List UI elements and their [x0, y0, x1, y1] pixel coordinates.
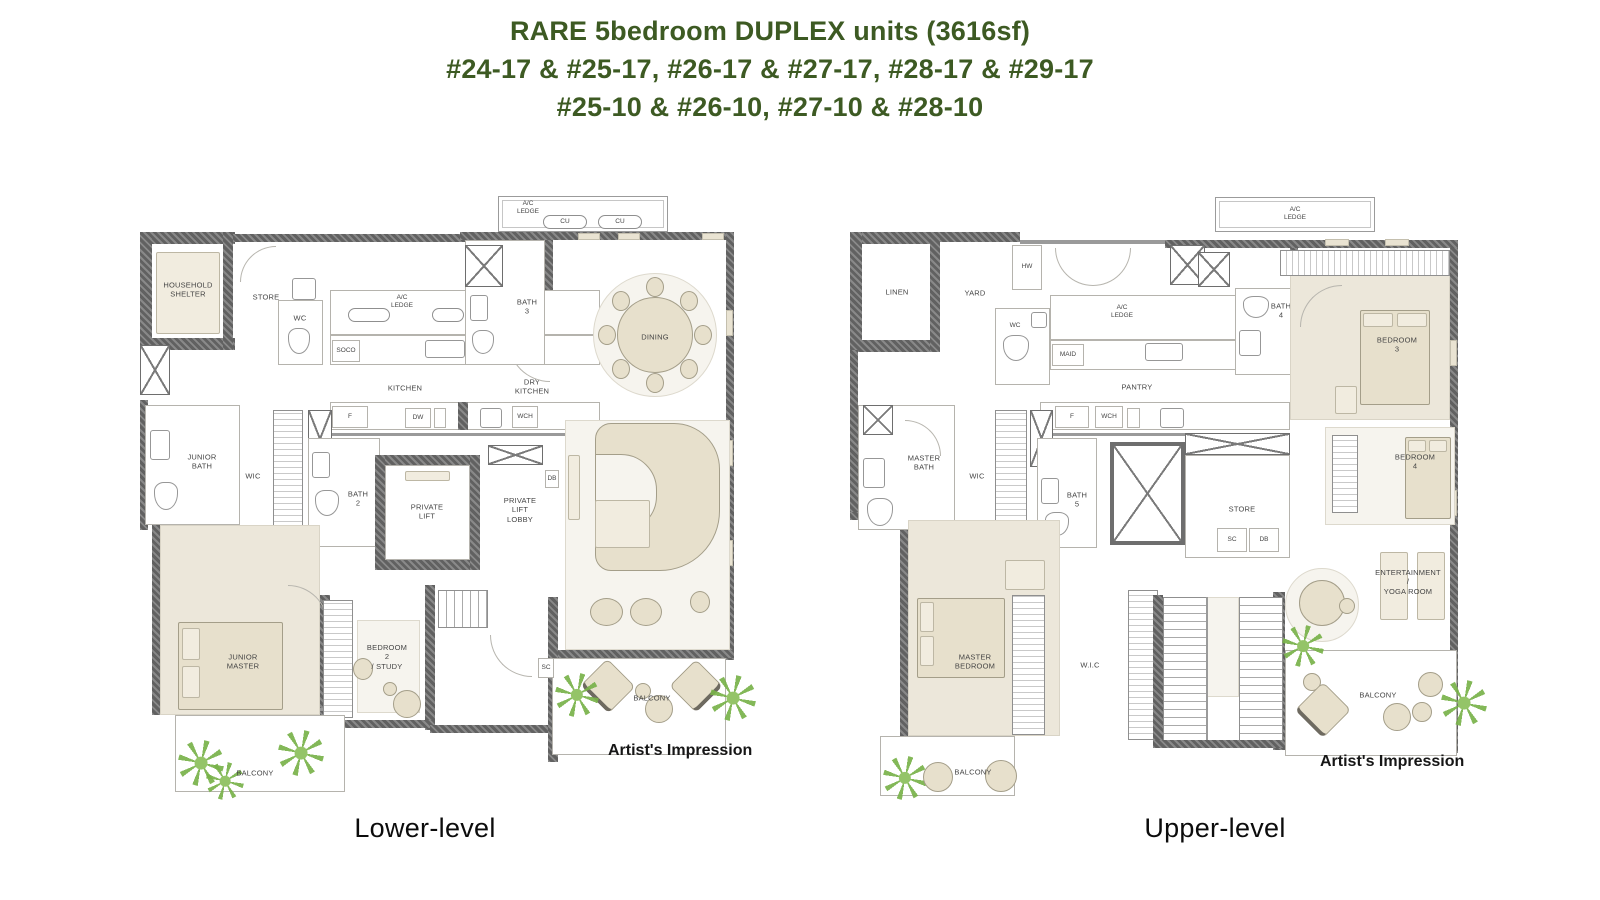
room-label-private-lift-lobby: PRIVATE LIFT LOBBY: [504, 496, 536, 524]
room-label-bedroom3: BEDROOM 3: [1377, 336, 1417, 355]
room-label-bedroom2-study: BEDROOM 2 / STUDY: [367, 643, 407, 671]
round-chair: [923, 762, 953, 792]
sink: [150, 430, 170, 460]
void-shaft: [1110, 442, 1185, 545]
room-label-db: DB: [1259, 536, 1268, 544]
pillow: [1408, 440, 1426, 452]
wall: [940, 232, 1020, 242]
wall: [1165, 240, 1458, 248]
room-label-ac-ledge-top: A/C LEDGE: [517, 200, 539, 216]
lower-level-plan: CU CU A/C LEDGE HOUSEHOLD SHELTER: [140, 190, 800, 810]
stairs: [1163, 597, 1207, 743]
service-shaft: [488, 445, 543, 465]
room-label-linen: LINEN: [885, 287, 908, 296]
dining-chair: [680, 359, 698, 379]
wardrobe: [273, 410, 303, 540]
room-label-sc: SC: [541, 664, 550, 672]
wall: [425, 585, 435, 730]
wardrobe: [323, 600, 353, 718]
sink: [1031, 312, 1047, 328]
palm-plant: [710, 675, 756, 721]
room-label-balcony-right: BALCONY: [1359, 690, 1396, 699]
room-label-pantry: PANTRY: [1122, 382, 1153, 391]
sink: [312, 452, 330, 478]
room-label-master-bedroom: MASTER BEDROOM: [955, 653, 995, 672]
artists-impression-credit: Artist's Impression: [1320, 753, 1464, 771]
upper-level-plan: A/C LEDGE LINEN YARD HW WC: [845, 190, 1470, 810]
floorplan-page: RARE 5bedroom DUPLEX units (3616sf) #24-…: [0, 0, 1600, 900]
service-shaft: [140, 345, 170, 395]
ac-condenser-unit: [432, 308, 464, 322]
room-label-bath4: BATH 4: [1271, 302, 1291, 321]
wall: [458, 402, 468, 430]
nightstand: [1335, 386, 1357, 414]
door-arc: [490, 635, 532, 677]
stairs: [438, 590, 488, 628]
sink: [470, 295, 488, 321]
door-arc: [1055, 248, 1093, 286]
room-label-bath5: BATH 5: [1067, 491, 1087, 510]
dining-chair: [694, 325, 712, 345]
stair-landing: [1207, 597, 1239, 697]
stairs: [1239, 597, 1283, 743]
window-sill: [618, 233, 640, 240]
window-sill: [1325, 239, 1349, 246]
room-label-balcony-right: BALCONY: [633, 693, 670, 702]
appliance: [1127, 408, 1140, 428]
wall: [552, 650, 734, 658]
pouf: [590, 598, 623, 626]
artists-impression-credit: Artist's Impression: [608, 742, 752, 760]
pouf: [690, 591, 710, 613]
round-table: [1418, 672, 1443, 697]
round-table: [383, 682, 397, 696]
pillow: [1429, 440, 1447, 452]
room-label-ac-ledge-left: A/C LEDGE: [1111, 304, 1133, 320]
sink: [292, 278, 316, 300]
coffee-table: [595, 500, 650, 548]
palm-plant: [883, 756, 927, 800]
sink: [1041, 478, 1059, 504]
service-shaft: [1185, 433, 1290, 455]
wall: [430, 725, 548, 733]
room-label-wic2: W.I.C: [1080, 660, 1099, 669]
room-label-soco: SOCO: [336, 347, 355, 355]
room-label-wic: WIC: [969, 471, 984, 480]
room-label-f: F: [1070, 413, 1074, 421]
wall: [375, 455, 480, 465]
room-label-dw: DW: [413, 414, 424, 422]
room-label-junior-bath: JUNIOR BATH: [187, 453, 216, 472]
wall: [1153, 740, 1285, 748]
title-line-1: RARE 5bedroom DUPLEX units (3616sf): [370, 13, 1170, 51]
wall: [850, 232, 862, 352]
round-table: [1412, 702, 1432, 722]
stair-railing: [1206, 597, 1208, 743]
wall: [850, 350, 858, 518]
lower-level-caption: Lower-level: [285, 813, 565, 844]
room-label-ac-ledge: A/C LEDGE: [391, 294, 413, 310]
pillow: [182, 666, 200, 698]
window-sill: [578, 233, 600, 240]
wall: [375, 455, 385, 570]
room-label-household-shelter: HOUSEHOLD SHELTER: [163, 281, 212, 300]
wall: [375, 560, 480, 570]
pouf: [630, 598, 662, 626]
wall: [223, 232, 233, 350]
page-title: RARE 5bedroom DUPLEX units (3616sf) #24-…: [370, 13, 1170, 126]
wall: [140, 232, 152, 350]
upper-level-caption: Upper-level: [1075, 813, 1355, 844]
sink: [863, 458, 885, 488]
room-label-wic: WIC: [245, 471, 260, 480]
wall: [330, 720, 435, 728]
room-label-kitchen: KITCHEN: [388, 383, 422, 392]
room-label-bedroom4: BEDROOM 4: [1395, 453, 1435, 472]
pillow: [920, 636, 934, 666]
room-label-f: F: [348, 413, 352, 421]
room-label-hw: HW: [1022, 263, 1033, 271]
sink: [1160, 408, 1184, 428]
sofa: [595, 423, 720, 571]
title-line-2: #24-17 & #25-17, #26-17 & #27-17, #28-17…: [370, 51, 1170, 89]
wall: [330, 433, 600, 436]
hanging-chair: [1299, 580, 1345, 626]
service-shaft: [863, 405, 893, 435]
room-label-cu: CU: [560, 218, 569, 226]
round-table: [1339, 598, 1355, 614]
cabinet: [1005, 560, 1045, 590]
dining-chair: [598, 325, 616, 345]
palm-plant: [1282, 625, 1324, 667]
room-label-wc: WC: [1010, 322, 1021, 330]
sink: [425, 340, 465, 358]
service-shaft: [1198, 252, 1230, 287]
pillow: [182, 628, 200, 660]
pillow: [920, 602, 934, 632]
sink: [1239, 330, 1261, 356]
window-sill: [702, 233, 724, 240]
wall: [850, 232, 940, 244]
room-label-maid: MAID: [1060, 351, 1076, 359]
room-label-bath2: BATH 2: [348, 490, 368, 509]
armchair: [393, 690, 421, 718]
window-sill: [1385, 239, 1409, 246]
wall: [1020, 240, 1170, 244]
appliance: [434, 408, 446, 428]
room-label-master-bath: MASTER BATH: [908, 454, 940, 473]
room-label-junior-master: JUNIOR MASTER: [227, 653, 259, 672]
room-label-store: STORE: [1229, 504, 1256, 513]
service-shaft: [465, 245, 503, 287]
wall: [930, 232, 940, 352]
room-label-wch: WCH: [517, 413, 533, 421]
room-label-store: STORE: [253, 292, 280, 301]
sink: [480, 408, 502, 428]
sink: [1145, 343, 1183, 361]
room-label-private-lift: PRIVATE LIFT: [411, 503, 443, 522]
room-label-yard: YARD: [964, 288, 985, 297]
wall: [1153, 595, 1163, 747]
window-sill: [1450, 340, 1457, 366]
room-label-db: DB: [547, 475, 556, 483]
room-label-dining: DINING: [641, 332, 668, 341]
dining-chair: [646, 373, 664, 393]
door-arc: [240, 246, 276, 282]
lobby-door: [568, 455, 580, 520]
room-label-wch: WCH: [1101, 413, 1117, 421]
door-arc: [288, 585, 328, 625]
wall: [140, 232, 235, 244]
room-label-balcony-left: BALCONY: [954, 767, 991, 776]
wall: [233, 234, 470, 242]
room-label-entertainment-yoga: ENTERTAINMENT / YOGA ROOM: [1375, 568, 1441, 596]
pillow: [1363, 313, 1393, 327]
wardrobe: [1280, 250, 1450, 276]
window-sill: [726, 310, 733, 336]
dining-chair: [646, 277, 664, 297]
palm-plant: [278, 730, 324, 776]
palm-plant: [555, 673, 599, 717]
palm-plant: [1441, 680, 1487, 726]
room-label-sc: SC: [1227, 536, 1236, 544]
room-label-wc: WC: [294, 313, 307, 322]
wall: [850, 340, 940, 352]
wall: [470, 455, 480, 570]
lift-detail: [405, 471, 450, 481]
pillow: [1397, 313, 1427, 327]
room-label-ac-ledge-top: A/C LEDGE: [1284, 206, 1306, 222]
ac-condenser-unit: [348, 308, 390, 322]
title-line-3: #25-10 & #26-10, #27-10 & #28-10: [370, 89, 1170, 127]
door-arc: [1093, 248, 1131, 286]
room-label-balcony-left: BALCONY: [236, 768, 273, 777]
room-label-bath3: BATH 3: [517, 298, 537, 317]
wardrobe: [1012, 595, 1045, 735]
room-label-cu: CU: [615, 218, 624, 226]
round-table: [1383, 703, 1411, 731]
wardrobe: [1332, 435, 1358, 513]
